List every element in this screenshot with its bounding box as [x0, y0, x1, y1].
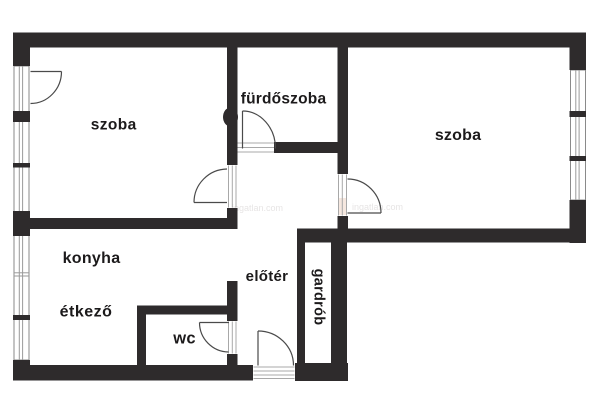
svg-text:fürdőszoba: fürdőszoba — [241, 91, 327, 108]
svg-text:wc: wc — [172, 330, 196, 348]
svg-text:gardrób: gardrób — [311, 269, 327, 326]
svg-text:szoba: szoba — [435, 127, 481, 144]
svg-text:ingatlan.com: ingatlan.com — [232, 203, 283, 213]
svg-text:előtér: előtér — [246, 268, 289, 285]
svg-text:étkező: étkező — [60, 304, 113, 321]
svg-text:konyha: konyha — [63, 250, 121, 267]
svg-text:szoba: szoba — [91, 117, 137, 134]
svg-text:ingatlan.com: ingatlan.com — [352, 202, 403, 212]
